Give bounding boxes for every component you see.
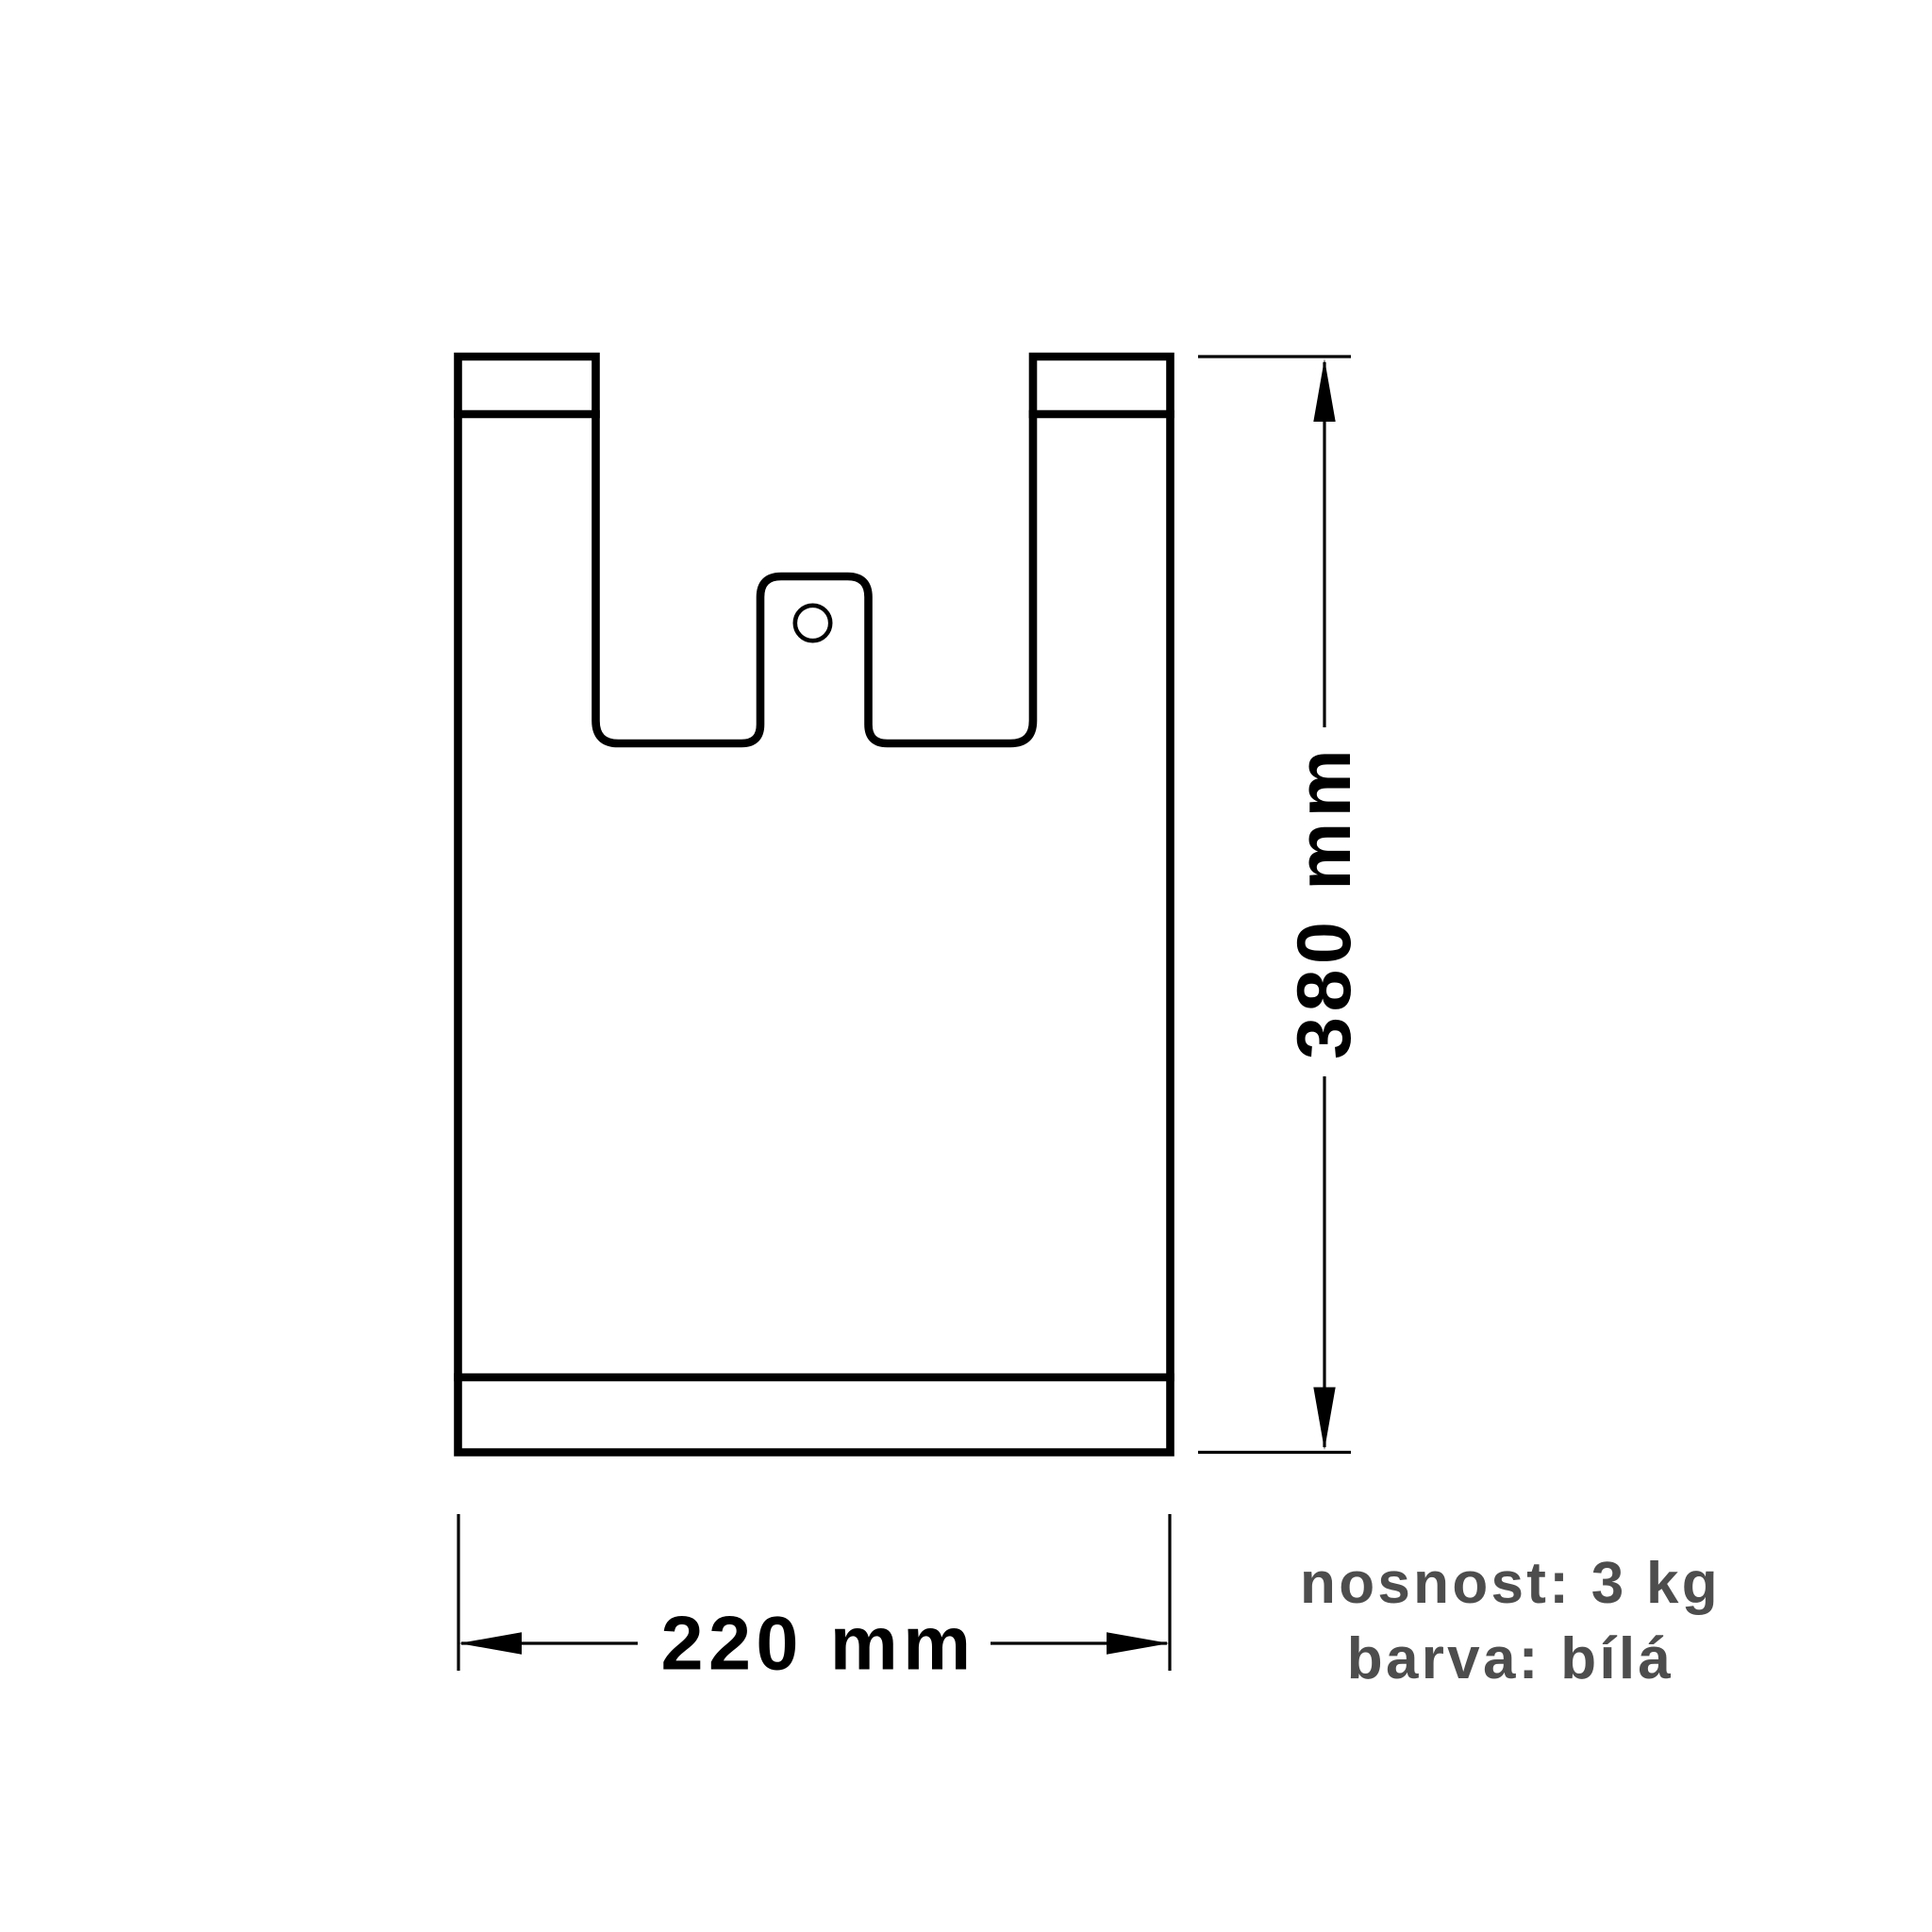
svg-text:380 mm: 380 mm: [1282, 744, 1367, 1059]
svg-text:nosnost: 3 kg: nosnost: 3 kg: [1300, 1551, 1721, 1616]
svg-text:220 mm: 220 mm: [661, 1602, 976, 1687]
svg-text:barva: bílá: barva: bílá: [1347, 1626, 1674, 1691]
